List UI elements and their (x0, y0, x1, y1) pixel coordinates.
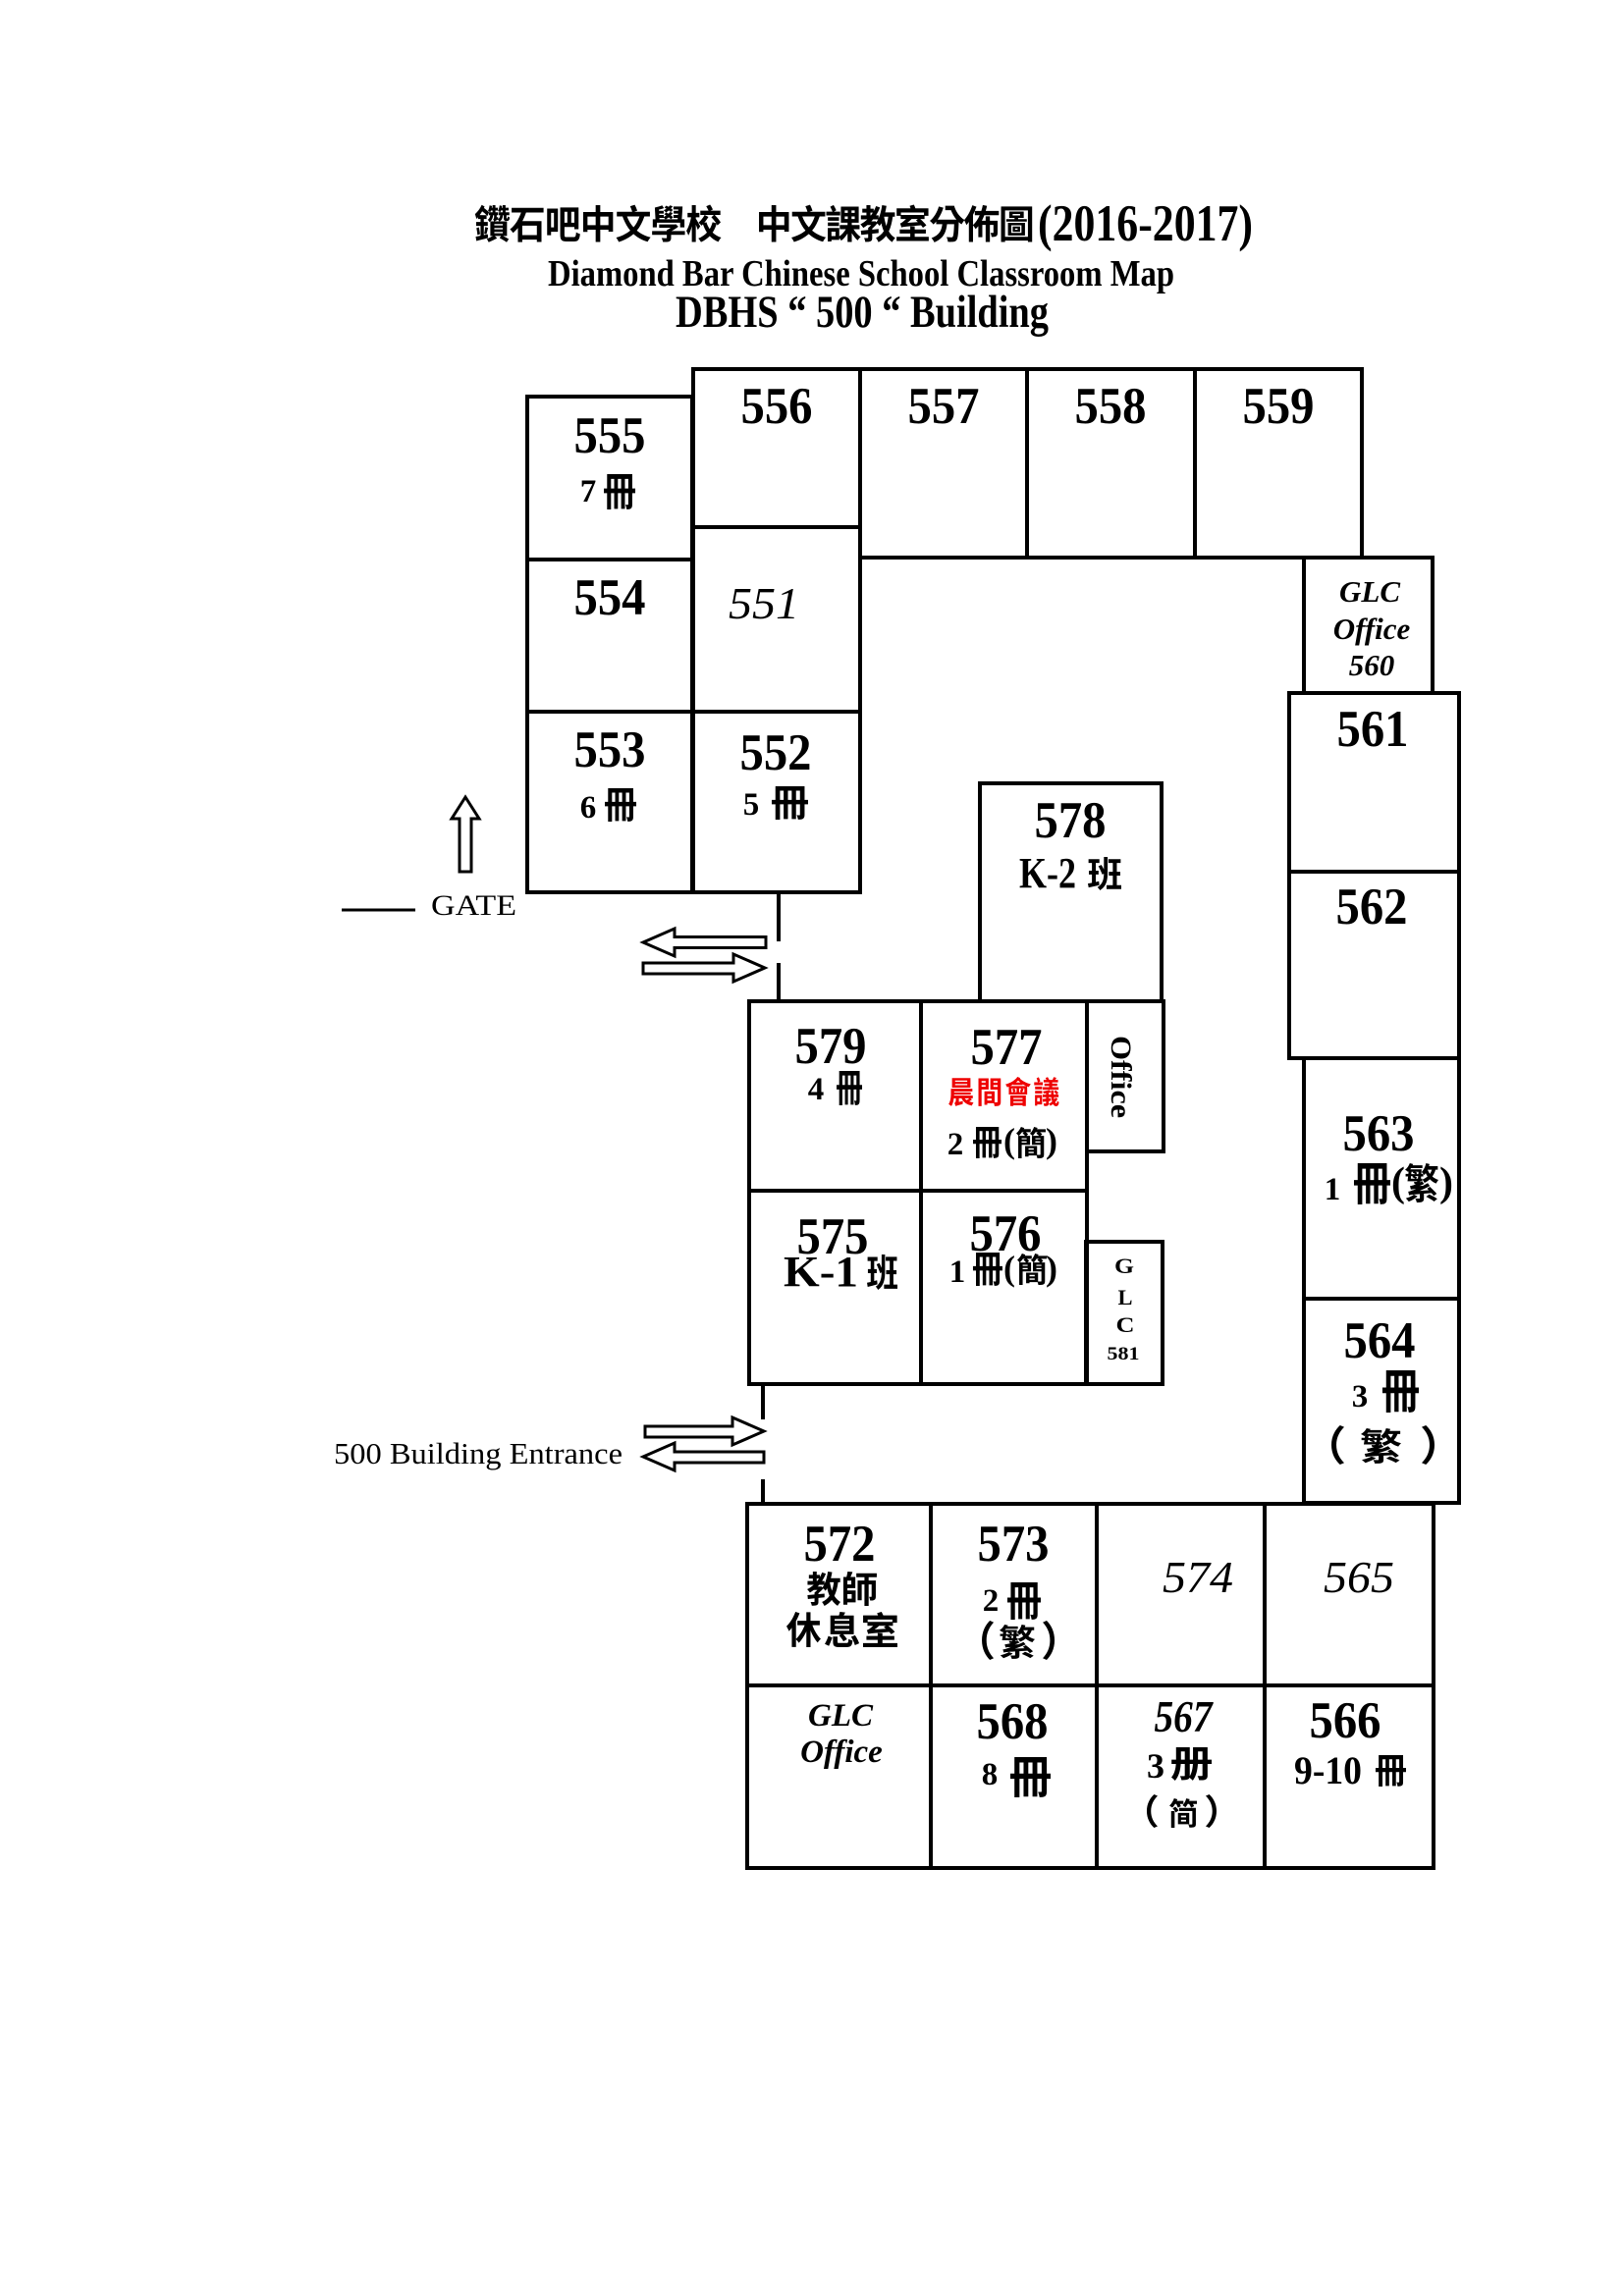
svg-text:552: 552 (740, 724, 812, 781)
svg-text:Office: Office (1105, 1036, 1137, 1118)
svg-text:): ) (1046, 1249, 1057, 1288)
svg-text:GLC: GLC (808, 1698, 874, 1734)
svg-text:558: 558 (1075, 378, 1147, 435)
svg-text:500 Building Entrance: 500 Building Entrance (334, 1436, 623, 1470)
svg-text:4: 4 (808, 1072, 825, 1107)
svg-text:6: 6 (580, 790, 597, 826)
svg-text:): ) (1439, 1160, 1453, 1205)
svg-text:566: 566 (1310, 1692, 1381, 1749)
svg-text:L: L (1118, 1285, 1133, 1309)
svg-text:3: 3 (1352, 1379, 1369, 1415)
svg-text:578: 578 (1035, 792, 1107, 849)
svg-text:1: 1 (949, 1255, 966, 1290)
svg-text:560: 560 (1349, 648, 1395, 682)
svg-text:553: 553 (574, 721, 646, 778)
svg-text:567: 567 (1155, 1692, 1214, 1741)
svg-text:G: G (1114, 1254, 1134, 1278)
svg-text:1: 1 (1325, 1172, 1341, 1207)
svg-text:555: 555 (574, 407, 646, 464)
svg-text:9-10: 9-10 (1294, 1748, 1362, 1792)
svg-text:564: 564 (1344, 1312, 1416, 1369)
svg-text:573: 573 (978, 1516, 1050, 1573)
svg-text:559: 559 (1243, 378, 1315, 435)
svg-text:K-1: K-1 (784, 1248, 858, 1296)
svg-text:C: C (1116, 1312, 1135, 1337)
svg-text:GLC: GLC (1339, 574, 1400, 609)
svg-text:581: 581 (1108, 1344, 1140, 1364)
svg-text:): ) (1046, 1121, 1057, 1160)
svg-text:565: 565 (1324, 1553, 1394, 1602)
svg-text:7: 7 (580, 474, 597, 509)
svg-text:3: 3 (1147, 1746, 1164, 1786)
svg-text:574: 574 (1163, 1553, 1233, 1602)
svg-text:K-2: K-2 (1019, 849, 1076, 897)
svg-text:2: 2 (947, 1127, 964, 1162)
svg-text:(2016-2017): (2016-2017) (1038, 195, 1253, 252)
svg-text:563: 563 (1343, 1105, 1415, 1162)
svg-text:8: 8 (982, 1757, 999, 1792)
svg-text:556: 556 (741, 378, 813, 435)
svg-text:DBHS “ 500 “ Building: DBHS “ 500 “ Building (676, 287, 1049, 338)
svg-text:Office: Office (1333, 612, 1411, 646)
svg-text:572: 572 (804, 1516, 876, 1573)
svg-text:568: 568 (977, 1693, 1049, 1750)
svg-text:579: 579 (795, 1018, 867, 1075)
svg-text:5: 5 (743, 787, 760, 823)
svg-text:(: ( (1003, 1249, 1015, 1288)
svg-text:Office: Office (800, 1735, 883, 1770)
svg-text:557: 557 (908, 378, 980, 435)
svg-text:551: 551 (729, 579, 799, 628)
svg-text:(: ( (1391, 1160, 1405, 1205)
svg-text:577: 577 (971, 1019, 1043, 1076)
svg-text:554: 554 (574, 569, 646, 626)
svg-text:2: 2 (983, 1583, 1000, 1619)
svg-text:(: ( (1003, 1121, 1015, 1160)
svg-text:561: 561 (1337, 701, 1409, 758)
svg-text:562: 562 (1336, 879, 1408, 935)
svg-text:GATE: GATE (431, 889, 516, 922)
